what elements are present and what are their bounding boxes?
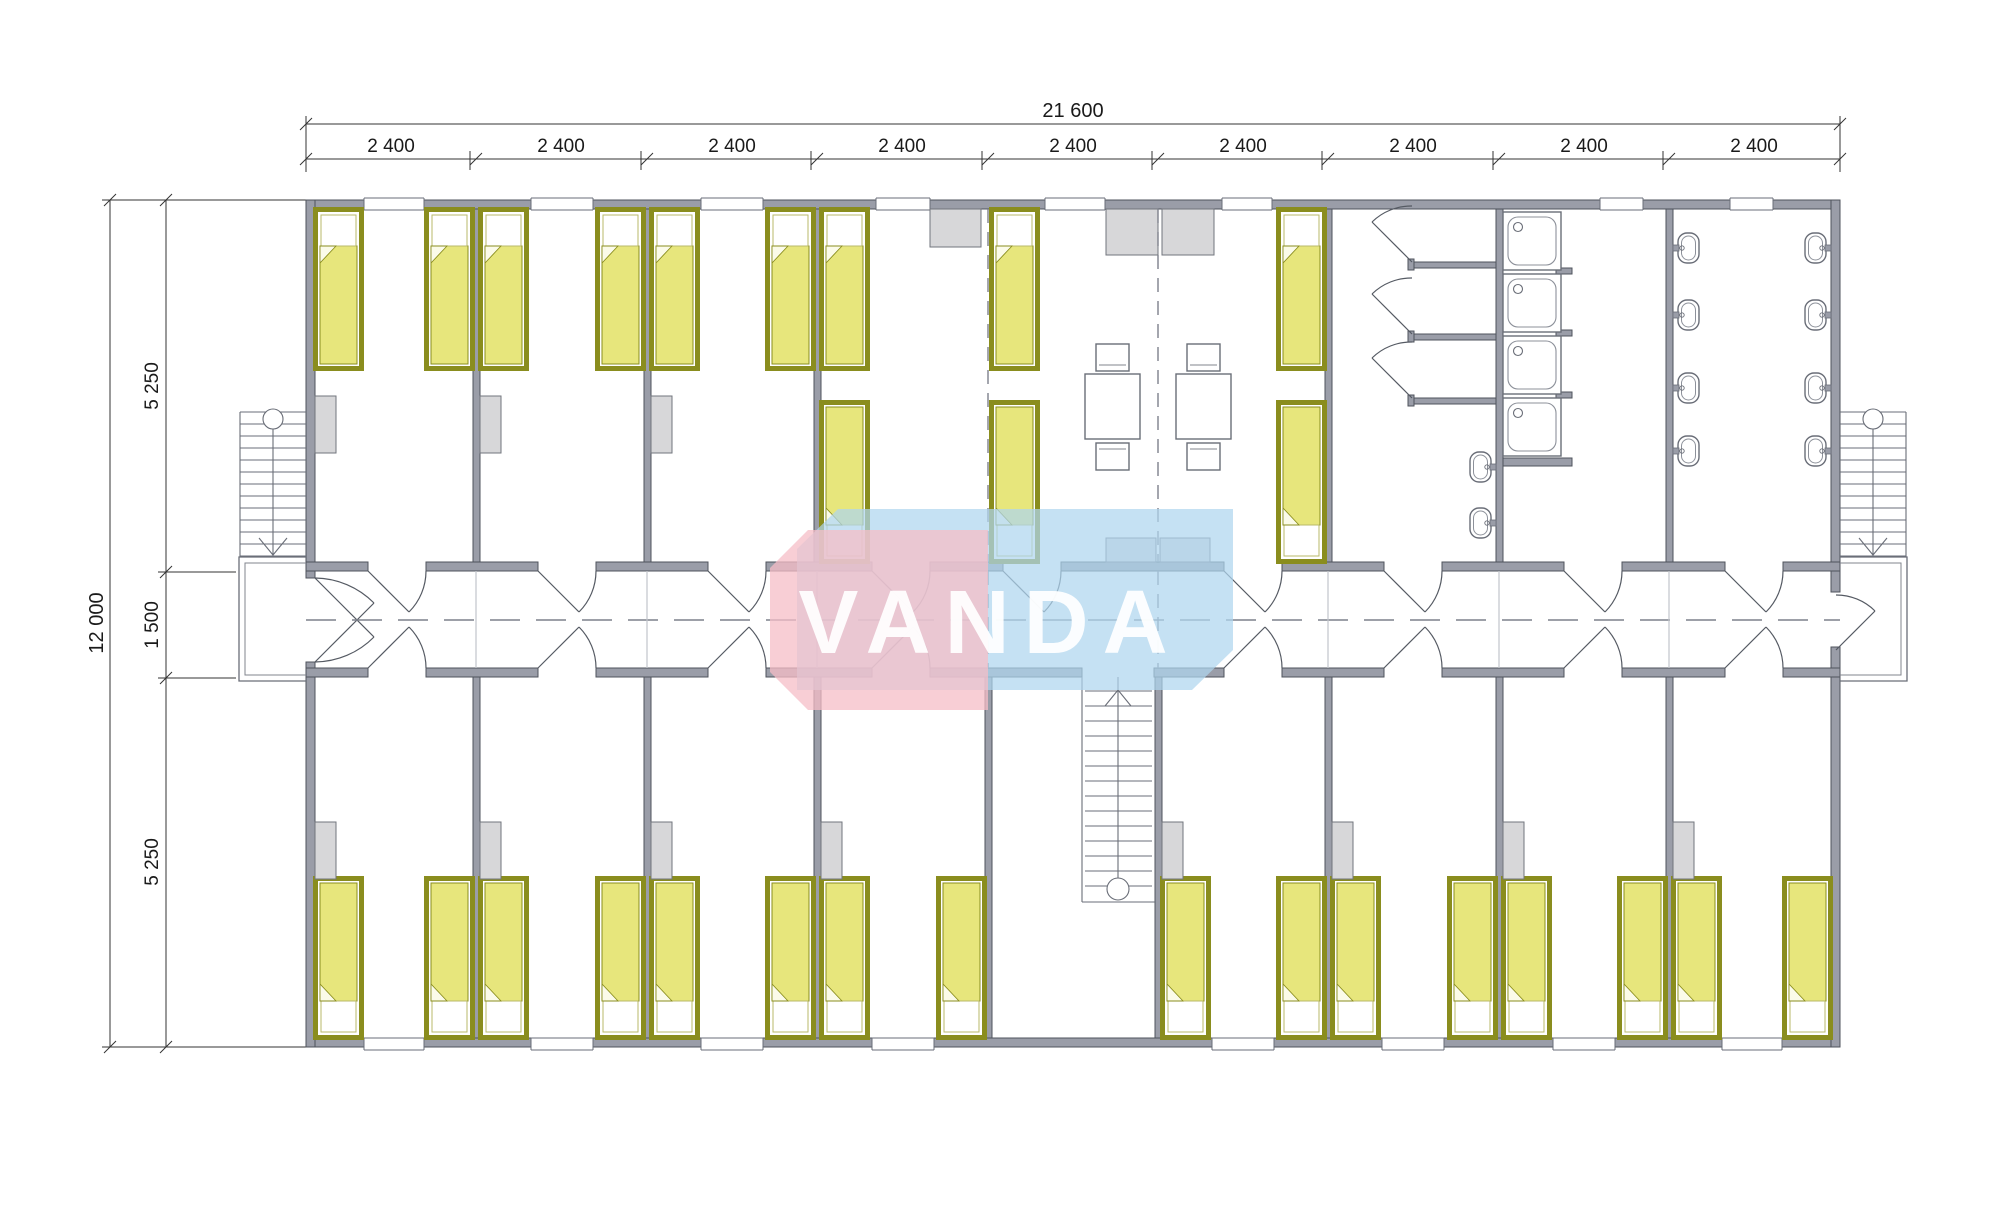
- cabinet: [1162, 209, 1214, 255]
- wardrobe: [480, 396, 501, 453]
- single-bed: [1504, 879, 1550, 1038]
- single-bed: [598, 210, 644, 369]
- wardrobe: [1503, 822, 1524, 879]
- cabinet: [1106, 209, 1158, 255]
- single-bed: [768, 210, 814, 369]
- toilet-stall-partition: [1412, 398, 1496, 404]
- stool: [1096, 344, 1129, 371]
- entrance-landing-west: [239, 557, 306, 681]
- dimension-top: 21 600 2 400 2 400 2 400 2 400 2 400 2 4…: [300, 100, 1846, 172]
- stool: [1187, 344, 1220, 371]
- dimension-total-depth: 12 000: [86, 592, 108, 653]
- dimension-upper-depth: 5 250: [142, 362, 163, 410]
- dimension-left: 12 000 5 250 1 500 5 250: [86, 194, 306, 1053]
- wardrobe: [651, 396, 672, 453]
- window-south: [872, 1036, 934, 1052]
- module-dim-3: 2 400: [708, 136, 756, 157]
- wardrobe: [480, 822, 501, 879]
- shower-tray: [1503, 336, 1561, 394]
- window-south: [1553, 1036, 1615, 1052]
- window-north: [531, 196, 593, 212]
- window-south: [1722, 1036, 1782, 1052]
- wardrobe: [315, 822, 336, 879]
- wardrobe: [651, 822, 672, 879]
- module-dim-2: 2 400: [537, 136, 585, 157]
- single-bed: [1333, 879, 1379, 1038]
- shower-tray: [1503, 398, 1561, 456]
- single-bed: [316, 879, 362, 1038]
- single-bed: [822, 879, 868, 1038]
- single-bed: [822, 210, 868, 369]
- dining-table: [1176, 374, 1231, 439]
- single-bed: [316, 210, 362, 369]
- module-dim-6: 2 400: [1219, 136, 1267, 157]
- single-bed: [598, 879, 644, 1038]
- single-bed: [481, 210, 527, 369]
- staircase-east: [1840, 409, 1906, 557]
- window-north: [1730, 196, 1773, 212]
- wardrobe: [315, 396, 336, 453]
- window-north: [1600, 196, 1643, 212]
- shower-tray: [1503, 212, 1561, 270]
- entrance-door-east: [1836, 595, 1875, 650]
- wardrobe: [821, 822, 842, 879]
- shower-tray: [1503, 274, 1561, 332]
- single-bed: [1279, 210, 1325, 369]
- dimension-lower-depth: 5 250: [142, 838, 163, 886]
- module-dim-7: 2 400: [1389, 136, 1437, 157]
- dimension-module-labels: 2 400 2 400 2 400 2 400 2 400 2 400 2 40…: [367, 136, 1778, 157]
- single-bed: [1163, 879, 1209, 1038]
- dimension-corridor-depth: 1 500: [142, 601, 163, 649]
- module-dim-1: 2 400: [367, 136, 415, 157]
- stool: [1187, 443, 1220, 470]
- single-bed: [939, 879, 985, 1038]
- module-dim-5: 2 400: [1049, 136, 1097, 157]
- floor-plan-page: 21 600 2 400 2 400 2 400 2 400 2 400 2 4…: [0, 0, 2000, 1219]
- wardrobe: [1162, 822, 1183, 879]
- staircase-west: [240, 409, 306, 557]
- single-bed: [1450, 879, 1496, 1038]
- cabinet: [930, 209, 981, 247]
- single-bed: [652, 210, 698, 369]
- floor-plan-drawing: 21 600 2 400 2 400 2 400 2 400 2 400 2 4…: [0, 0, 2000, 1219]
- watermark: VANDA: [770, 509, 1233, 710]
- single-bed: [427, 879, 473, 1038]
- dimension-total-width: 21 600: [1042, 100, 1103, 122]
- window-north: [876, 196, 930, 212]
- single-bed: [1620, 879, 1666, 1038]
- single-bed: [768, 879, 814, 1038]
- single-bed: [1279, 403, 1325, 562]
- window-north: [701, 196, 763, 212]
- single-bed: [1785, 879, 1831, 1038]
- toilet-stall-partition: [1412, 262, 1496, 268]
- dining-table: [1085, 374, 1140, 439]
- module-dim-8: 2 400: [1560, 136, 1608, 157]
- single-bed: [427, 210, 473, 369]
- wardrobe: [1673, 822, 1694, 879]
- entrance-landing-east: [1840, 557, 1907, 681]
- window-north: [1045, 196, 1105, 212]
- window-north: [364, 196, 424, 212]
- module-dim-4: 2 400: [878, 136, 926, 157]
- wall-east-upper: [1831, 200, 1840, 592]
- window-south: [1212, 1036, 1274, 1052]
- window-south: [1382, 1036, 1444, 1052]
- single-bed: [1279, 879, 1325, 1038]
- window-south: [701, 1036, 763, 1052]
- window-south: [364, 1036, 424, 1052]
- module-dim-9: 2 400: [1730, 136, 1778, 157]
- single-bed: [992, 210, 1038, 369]
- watermark-text: VANDA: [798, 573, 1181, 673]
- single-bed: [1674, 879, 1720, 1038]
- wardrobe: [1332, 822, 1353, 879]
- toilet-stall-partition: [1412, 334, 1496, 340]
- window-north: [1222, 196, 1272, 212]
- stool: [1096, 443, 1129, 470]
- window-south: [531, 1036, 593, 1052]
- single-bed: [481, 879, 527, 1038]
- single-bed: [652, 879, 698, 1038]
